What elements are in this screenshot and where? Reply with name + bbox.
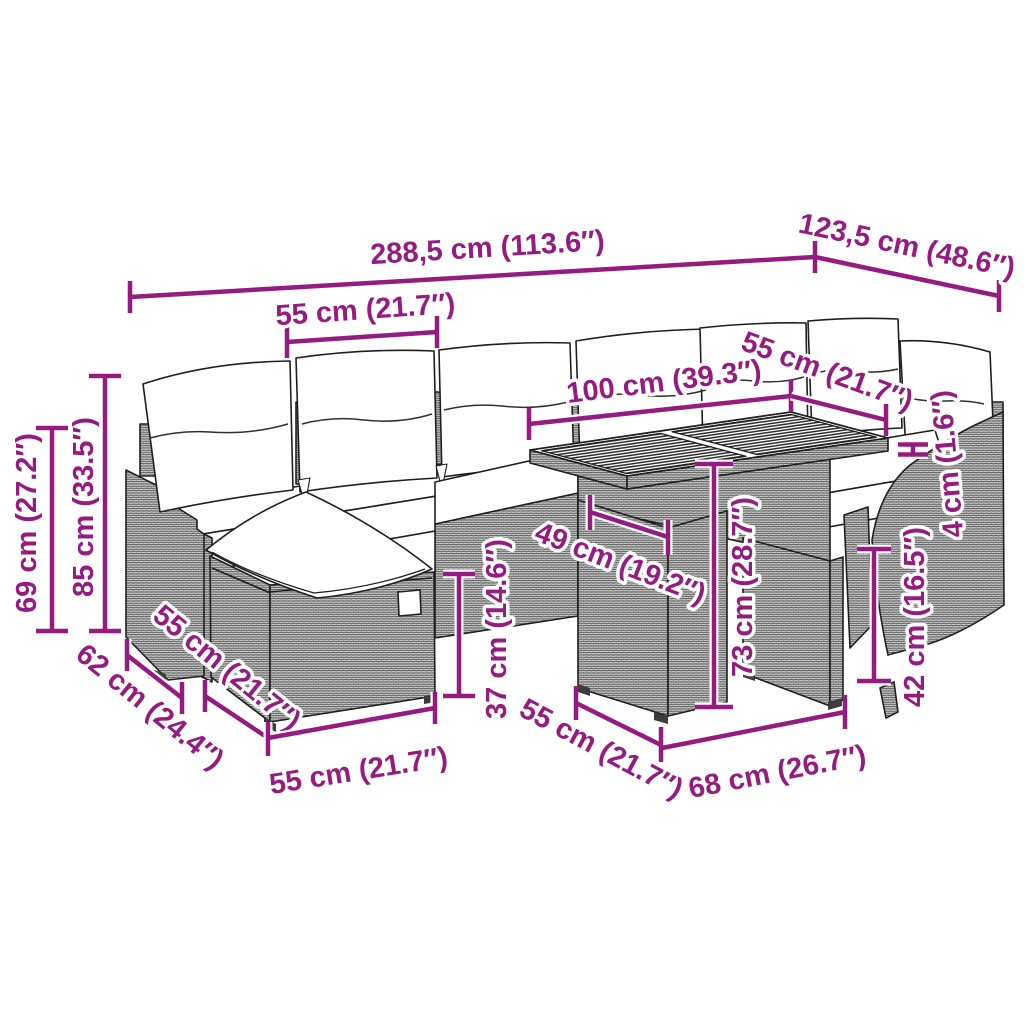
svg-text:37 cm (14.6″): 37 cm (14.6″) bbox=[481, 539, 513, 719]
svg-text:73 cm (28.7″): 73 cm (28.7″) bbox=[727, 497, 759, 677]
svg-text:85 cm (33.5″): 85 cm (33.5″) bbox=[68, 417, 100, 597]
svg-text:42 cm (16.5″): 42 cm (16.5″) bbox=[899, 527, 931, 707]
svg-text:69 cm (27.2″): 69 cm (27.2″) bbox=[11, 433, 43, 613]
